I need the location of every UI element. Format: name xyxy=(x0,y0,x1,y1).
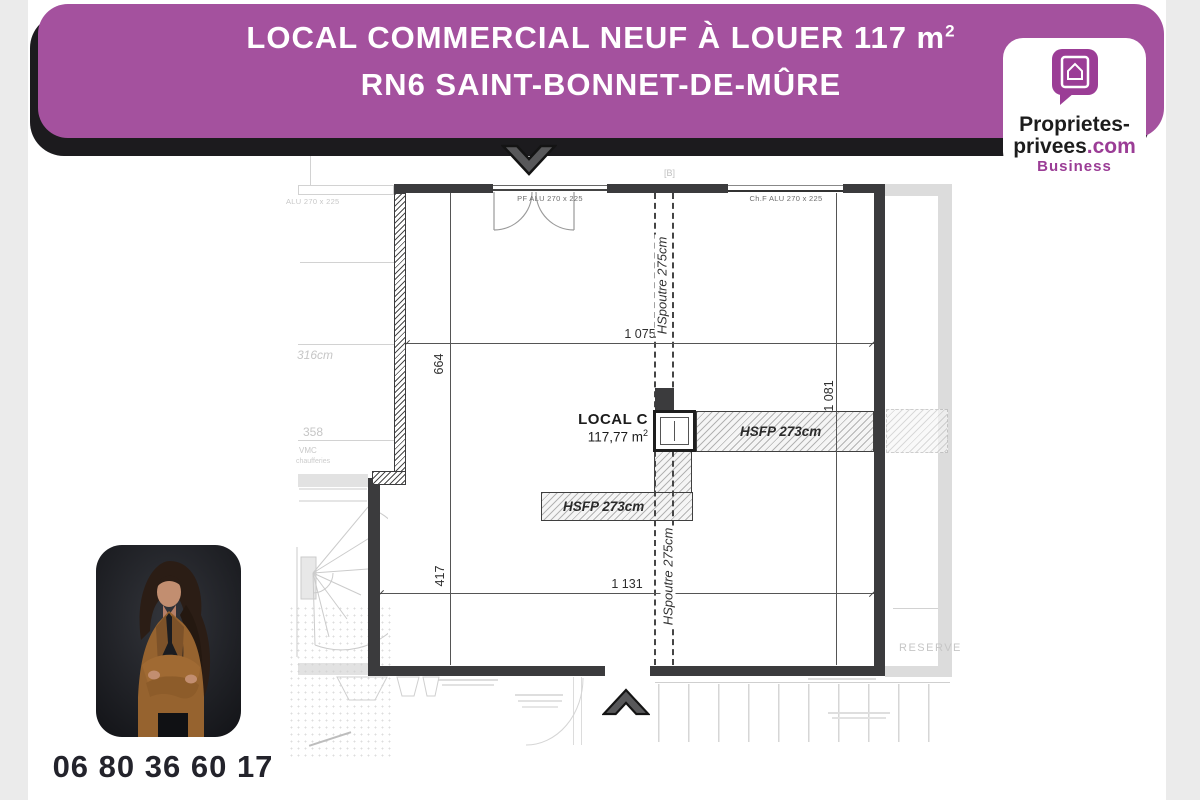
entry-arrow-top xyxy=(501,144,557,176)
door-top-label: PF ALU 270 x 225 xyxy=(500,194,600,203)
faint-dim-358: 358 xyxy=(303,425,323,439)
room-area: 117,77 m2 xyxy=(553,428,648,445)
bike-rack-lines xyxy=(658,684,950,742)
faint-hline-2 xyxy=(298,344,394,345)
agent-phone-number: 06 80 36 60 17 xyxy=(28,749,298,785)
logo-text-line2: privees.com xyxy=(1003,136,1146,158)
vmc-label-2: chaufferies xyxy=(296,458,330,465)
logo-text-line3: Business xyxy=(1003,158,1146,176)
window-top-right-label: Ch.F ALU 270 x 225 xyxy=(736,194,836,203)
faint-vertical-line xyxy=(310,156,311,185)
pillar-center-mark xyxy=(674,421,675,441)
hsfp-band-extension xyxy=(886,409,948,453)
agency-logo-card: Proprietes- privees.com Business xyxy=(1003,38,1146,172)
faint-dim-316: 316cm xyxy=(297,348,333,362)
faint-door-arc xyxy=(525,677,585,747)
landing-band-top xyxy=(298,474,368,487)
fence-top-line xyxy=(655,682,950,683)
vline-left-dim xyxy=(450,193,451,665)
utility-funnels xyxy=(335,676,445,704)
outer-wall-top-gray xyxy=(885,184,952,196)
dim-1131-label: 1 131 xyxy=(597,577,657,591)
pillar-box xyxy=(653,410,696,452)
dim-417-label: 417 xyxy=(433,546,447,606)
wall-top-b xyxy=(610,184,728,193)
dim-664-label: 664 xyxy=(432,334,446,394)
faint-hline-3 xyxy=(298,440,394,441)
beam-label-upper: HSpoutre 275cm xyxy=(655,211,670,361)
wall-bottom-left xyxy=(368,666,605,676)
faint-hline-reserve xyxy=(893,608,938,609)
entry-arrow-bottom xyxy=(602,687,650,717)
vline-right-dim xyxy=(836,193,837,665)
wall-bottom-right xyxy=(650,666,885,676)
room-name: LOCAL C xyxy=(553,411,648,428)
faint-window-left xyxy=(298,185,394,195)
wall-right xyxy=(874,184,885,676)
faint-note-bar-1 xyxy=(808,678,876,680)
dim-1081-label: 1 081 xyxy=(822,366,836,426)
faint-window-left-label: ALU 270 x 225 xyxy=(286,197,340,206)
wall-left-hatched xyxy=(394,193,406,472)
faint-note-bar-3 xyxy=(832,717,886,719)
window-top-right xyxy=(728,185,843,192)
structural-column xyxy=(655,388,674,411)
hline-dim-1131 xyxy=(380,593,876,594)
faint-hline-1 xyxy=(300,262,396,263)
room-label-block: LOCAL C 117,77 m2 xyxy=(553,411,648,445)
speech-bubble-house-icon xyxy=(1052,49,1098,105)
agent-portrait-graphic xyxy=(96,545,241,737)
hsfp-right-label: HSFP 273cm xyxy=(740,424,821,439)
faint-note-bar-5 xyxy=(442,684,494,686)
faint-note-bar-2 xyxy=(828,712,890,714)
vmc-label: VMC xyxy=(299,446,317,455)
door-jamb-right xyxy=(607,184,610,193)
header-banner: LOCAL COMMERCIAL NEUF À LOUER 117 m2 RN6… xyxy=(38,4,1164,138)
door-threshold-line-top xyxy=(492,185,610,186)
hsfp-lower-label: HSFP 273cm xyxy=(563,499,644,514)
wall-left-step xyxy=(372,471,406,485)
header-title-line2: RN6 SAINT-BONNET-DE-MÛRE xyxy=(38,67,1164,103)
reserve-label: RESERVE xyxy=(899,642,962,654)
logo-text-line1: Proprietes- xyxy=(1003,114,1146,136)
hline-dim-1075 xyxy=(406,343,876,344)
agent-photo xyxy=(96,545,241,737)
outer-wall-bottom-gray xyxy=(885,666,938,677)
wall-left-lower xyxy=(368,478,380,676)
header-title-line1: LOCAL COMMERCIAL NEUF À LOUER 117 m2 xyxy=(38,20,1164,56)
left-edge-strip xyxy=(0,0,28,800)
wall-top-a xyxy=(394,184,492,193)
right-edge-strip xyxy=(1166,0,1200,800)
b-axis-marker: [B] xyxy=(664,168,675,178)
faint-note-bar-4 xyxy=(438,679,498,681)
beam-label-lower: HSpoutre 275cm xyxy=(661,502,676,652)
flyer-page: ALU 270 x 225 316cm 358 VMC chaufferies xyxy=(0,0,1200,800)
